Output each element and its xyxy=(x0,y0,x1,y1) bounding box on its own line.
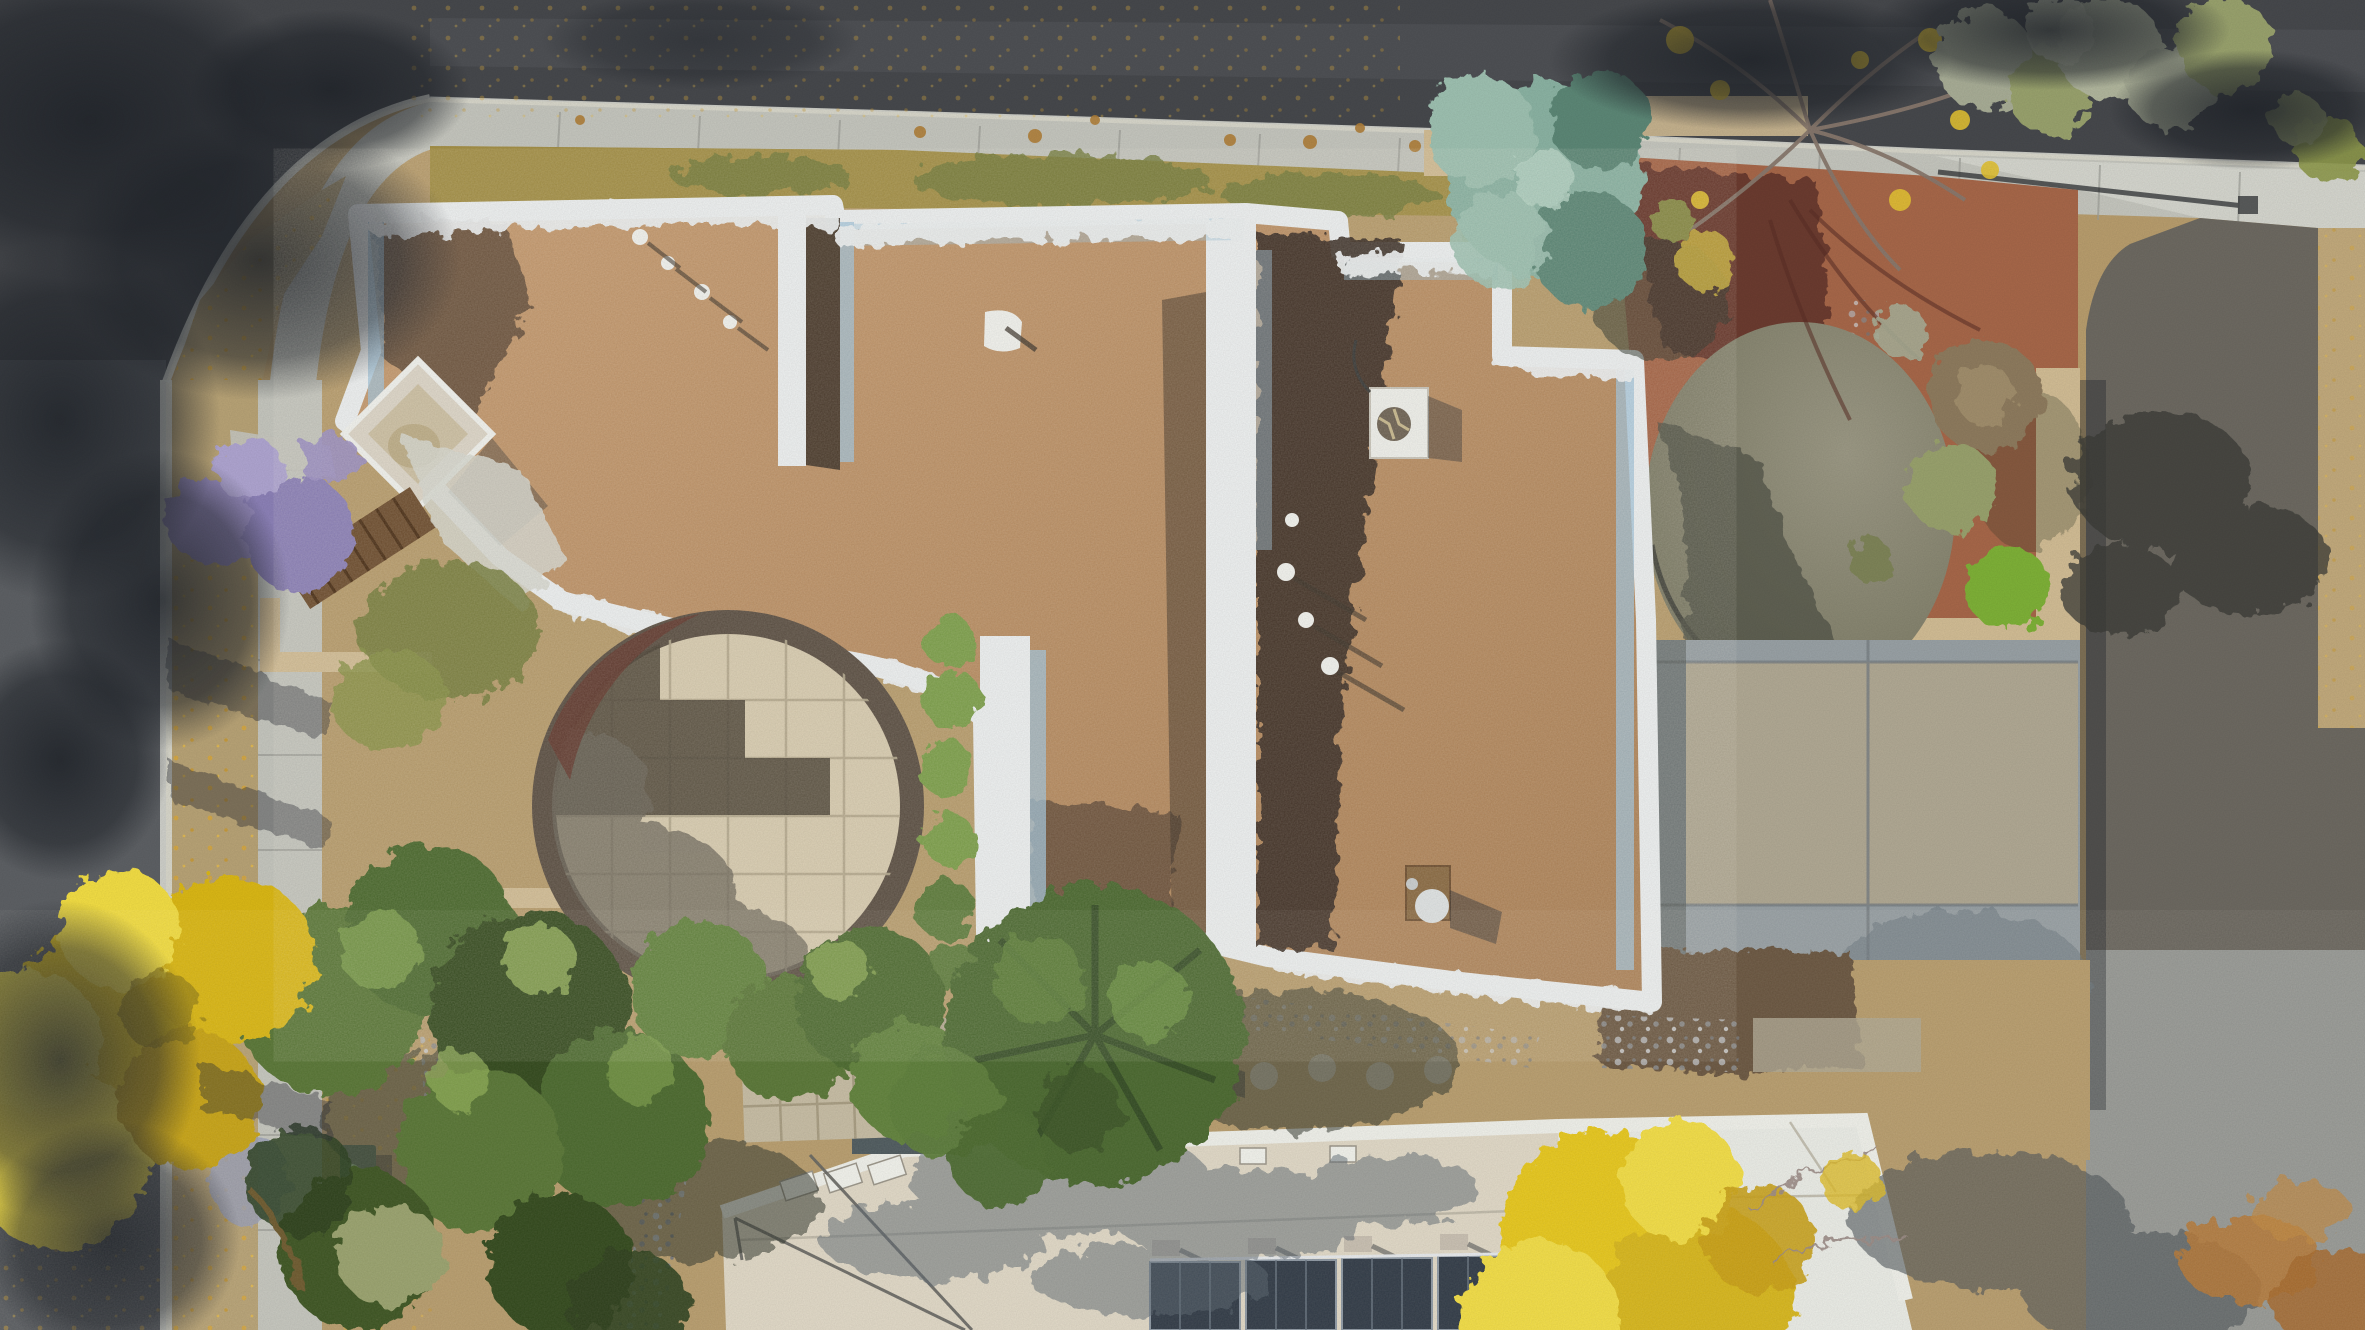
grain-dark-full xyxy=(0,0,2365,1330)
aerial-photo xyxy=(0,0,2365,1330)
aerial-photo-canvas xyxy=(0,0,2365,1330)
